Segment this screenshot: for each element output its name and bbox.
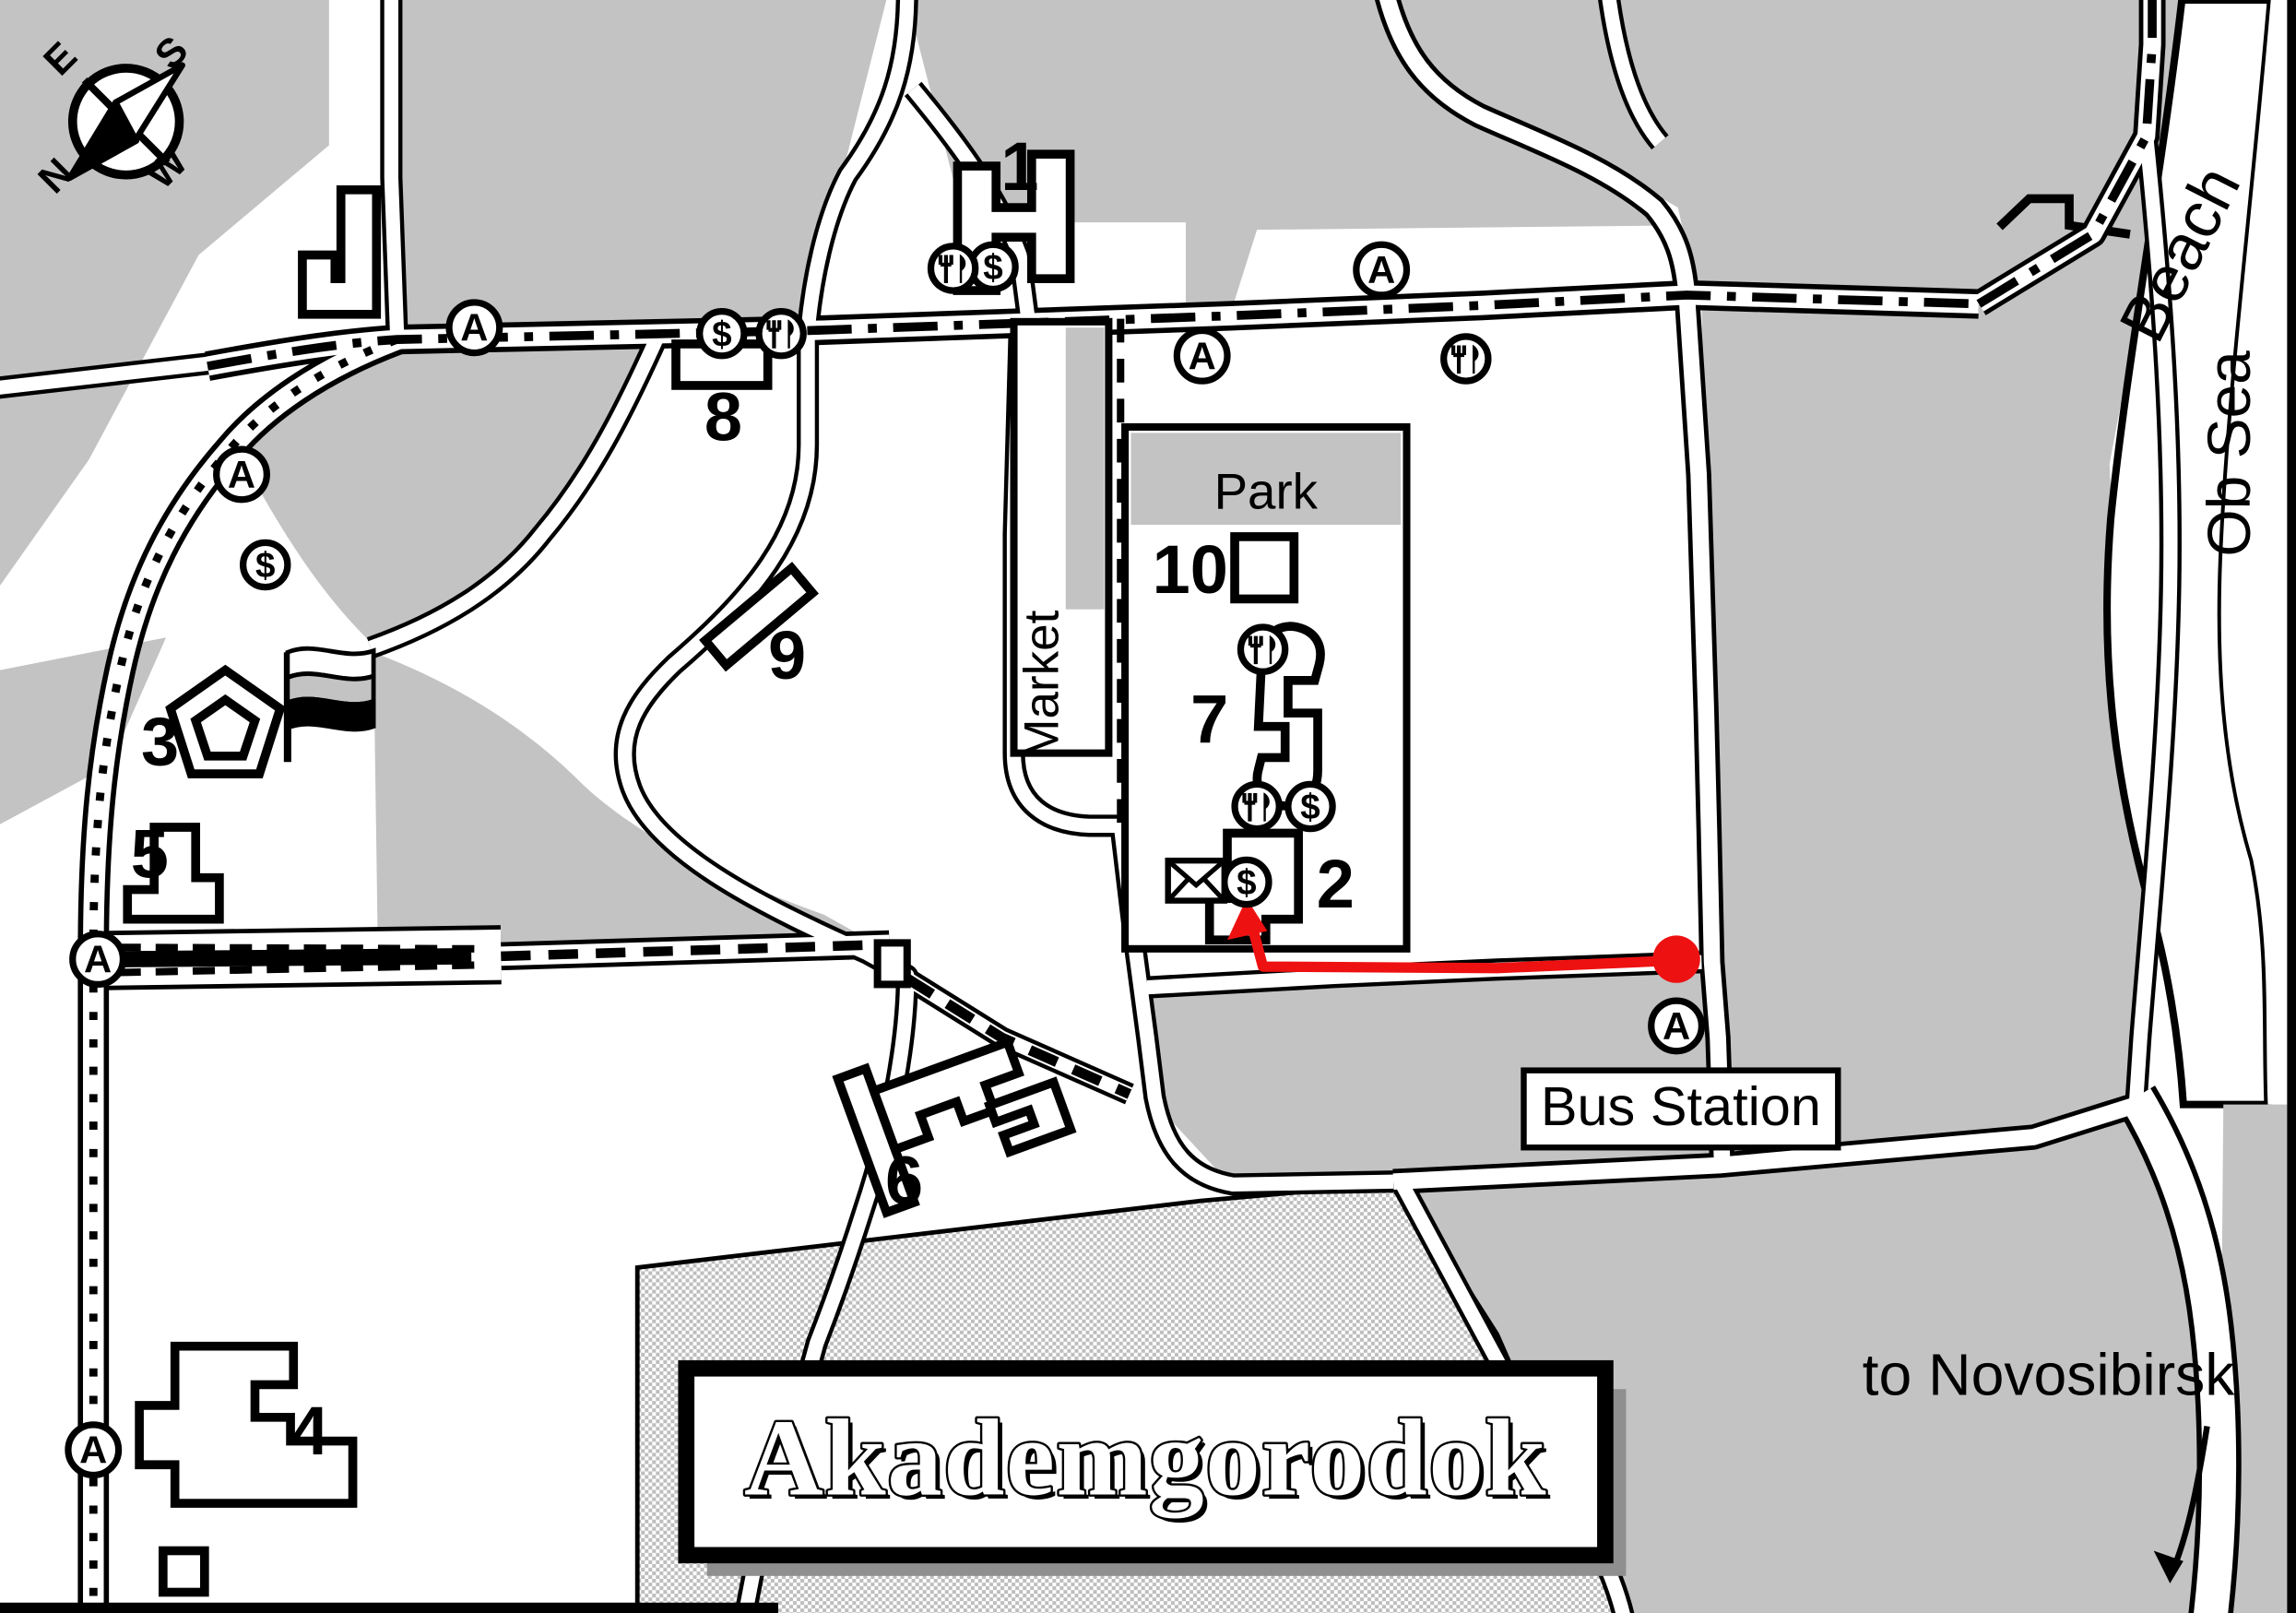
building-number-4: 4 [290,1393,328,1469]
market-block: Market [1014,322,1109,760]
post-office-icon [1168,860,1225,900]
building-number-5: 5 [131,816,169,893]
svg-text:$: $ [983,248,1002,288]
map-border-right [2287,0,2296,1613]
bus-stop-icon: A [73,934,124,985]
currency-exchange-icon: $ [243,542,288,587]
map-border-bottom [0,1603,778,1613]
novosibirsk-label: to Novosibirsk [1863,1342,2236,1408]
bus-stop-icon: A [449,302,500,353]
park-label: Park [1214,463,1319,519]
building-number-1: 1 [1000,128,1038,205]
svg-text:$: $ [1237,863,1256,903]
svg-text:A: A [1189,334,1216,377]
bus-stop-icon: A [68,1425,119,1476]
building-number-2: 2 [1317,846,1355,922]
svg-text:A: A [1367,248,1395,291]
svg-text:A: A [228,453,255,496]
svg-text:$: $ [255,546,275,586]
building-number-10: 10 [1153,531,1228,608]
currency-exchange-icon: $ [700,312,744,356]
svg-text:$: $ [1300,788,1320,827]
svg-text:$: $ [712,314,731,354]
ob-sea-label: Ob Sea [2195,350,2263,557]
bus-station-sign: Bus Station [1523,1071,1838,1148]
building-number-9: 9 [768,617,806,694]
restaurant-icon [1235,784,1279,828]
akademgorodok-map: Park Market [0,0,2296,1613]
building-number-7: 7 [1190,681,1228,757]
bus-stop-icon: A [1651,1001,1702,1051]
route-start-dot [1652,935,1699,982]
restaurant-icon [759,312,803,356]
bus-stop-icon: A [1177,330,1227,381]
building-number-8: 8 [704,378,742,455]
svg-text:A: A [1663,1004,1690,1048]
building-number-3: 3 [141,703,179,779]
svg-text:A: A [79,1429,107,1472]
restaurant-icon [931,246,976,291]
building-number-6: 6 [885,1142,923,1218]
currency-exchange-icon: $ [1225,860,1269,904]
svg-text:A: A [84,938,112,981]
title-box: Akademgorodok Akademgorodok [686,1369,1626,1576]
bus-station-label: Bus Station [1541,1075,1821,1137]
bridge [878,943,907,984]
bus-stop-icon: A [217,449,267,500]
currency-exchange-icon: $ [1288,784,1332,828]
restaurant-icon [1240,627,1284,671]
svg-text:A: A [460,306,488,350]
bus-stop-icon: A [1356,244,1407,295]
building-10 [1235,537,1294,599]
restaurant-icon [1444,337,1488,381]
market-label: Market [1015,610,1070,759]
map-title: Akademgorodok [744,1396,1547,1518]
